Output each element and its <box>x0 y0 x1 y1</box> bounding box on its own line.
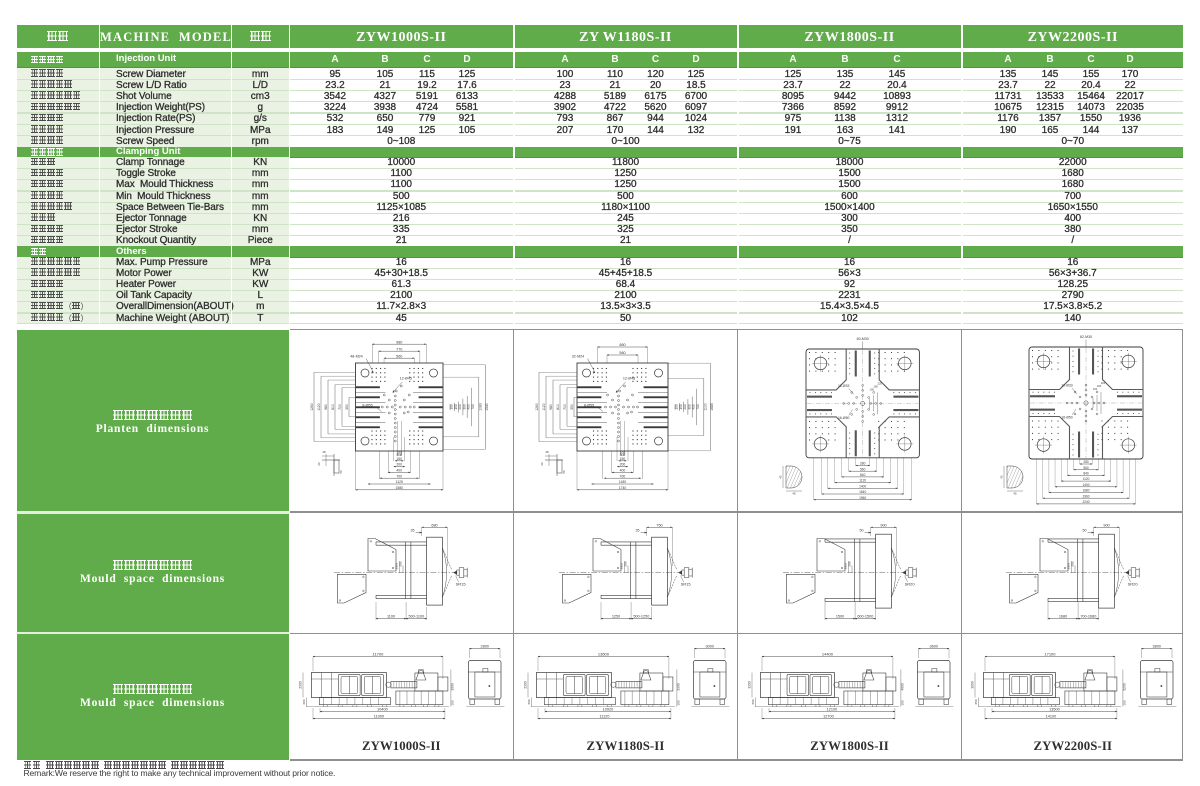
svg-text:1680: 1680 <box>1058 614 1066 618</box>
svg-text:560: 560 <box>396 354 402 358</box>
svg-text:980: 980 <box>396 340 402 344</box>
svg-text:Ø56: Ø56 <box>847 560 851 565</box>
svg-text:35: 35 <box>411 528 415 532</box>
svg-text:1260: 1260 <box>310 403 314 411</box>
svg-text:Ø56: Ø56 <box>623 560 627 565</box>
svg-text:810: 810 <box>331 404 335 410</box>
svg-text:82-M30: 82-M30 <box>1079 335 1091 339</box>
svg-text:12700: 12700 <box>823 714 834 718</box>
svg-text:1260: 1260 <box>534 403 538 411</box>
svg-text:100: 100 <box>676 700 680 705</box>
svg-text:50: 50 <box>1082 528 1086 532</box>
svg-text:980: 980 <box>548 404 552 410</box>
svg-text:12-Ø33: 12-Ø33 <box>1061 383 1072 387</box>
svg-text:700-1680: 700-1680 <box>1080 614 1096 618</box>
svg-text:1100: 1100 <box>703 403 707 410</box>
svg-text:60-M30: 60-M30 <box>856 337 868 341</box>
svg-text:11000: 11000 <box>374 714 384 718</box>
svg-text:500-1100: 500-1100 <box>408 614 424 618</box>
svg-text:50: 50 <box>859 528 863 532</box>
svg-text:2240: 2240 <box>1082 500 1089 504</box>
svg-text:45: 45 <box>778 475 782 479</box>
svg-text:1960: 1960 <box>859 495 866 499</box>
svg-text:500-1250: 500-1250 <box>633 614 649 618</box>
svg-text:45: 45 <box>792 491 796 495</box>
svg-text:17100: 17100 <box>1044 651 1056 656</box>
svg-text:1400: 1400 <box>1082 482 1089 486</box>
svg-text:Ø200: Ø200 <box>1066 562 1070 569</box>
svg-text:900: 900 <box>1103 523 1109 527</box>
svg-text:32-M24: 32-M24 <box>571 354 584 358</box>
svg-text:280: 280 <box>860 461 866 465</box>
svg-text:980: 980 <box>324 404 328 410</box>
svg-text:700: 700 <box>471 404 475 410</box>
svg-text:150: 150 <box>396 456 402 460</box>
svg-text:13500: 13500 <box>1049 707 1060 711</box>
svg-text:1540: 1540 <box>485 403 489 411</box>
svg-text:860: 860 <box>619 343 625 347</box>
svg-text:1640: 1640 <box>859 490 866 494</box>
svg-text:4000: 4000 <box>900 683 904 691</box>
svg-text:400: 400 <box>619 468 625 472</box>
svg-text:16-Ø50: 16-Ø50 <box>1061 415 1072 419</box>
svg-text:810: 810 <box>555 404 559 410</box>
svg-text:Ø56: Ø56 <box>399 560 403 565</box>
svg-text:1180: 1180 <box>618 480 625 484</box>
svg-text:1120: 1120 <box>859 478 866 482</box>
svg-text:28: 28 <box>545 450 549 454</box>
svg-text:1083: 1083 <box>479 403 483 411</box>
svg-text:48-M24: 48-M24 <box>350 354 363 358</box>
svg-text:900: 900 <box>880 523 886 527</box>
svg-text:12-Ø33: 12-Ø33 <box>838 383 849 387</box>
svg-text:45: 45 <box>999 475 1003 479</box>
svg-text:50: 50 <box>339 470 343 474</box>
svg-text:650: 650 <box>974 699 978 704</box>
svg-text:600-1500: 600-1500 <box>857 614 873 618</box>
svg-text:3000: 3000 <box>451 683 455 691</box>
svg-text:Ø200: Ø200 <box>395 562 399 569</box>
svg-text:3000: 3000 <box>705 644 713 648</box>
svg-text:350: 350 <box>345 404 349 410</box>
svg-text:SR15: SR15 <box>680 581 691 586</box>
svg-text:200: 200 <box>619 462 625 466</box>
svg-text:700: 700 <box>619 474 625 478</box>
svg-text:1250: 1250 <box>611 614 619 618</box>
svg-text:1400: 1400 <box>859 484 866 488</box>
svg-text:1960: 1960 <box>1082 494 1089 498</box>
svg-text:3300: 3300 <box>747 681 751 689</box>
svg-text:Ø56: Ø56 <box>1070 560 1074 565</box>
svg-text:200: 200 <box>396 462 402 466</box>
svg-text:1120: 1120 <box>541 403 545 410</box>
svg-text:400: 400 <box>396 468 402 472</box>
svg-text:13600: 13600 <box>597 651 609 656</box>
svg-text:560: 560 <box>619 351 625 355</box>
svg-text:220: 220 <box>877 381 882 385</box>
svg-text:840: 840 <box>860 473 866 477</box>
svg-text:50: 50 <box>562 470 566 474</box>
svg-text:35: 35 <box>635 528 639 532</box>
svg-text:28: 28 <box>322 450 326 454</box>
svg-text:8-Ø55: 8-Ø55 <box>362 403 372 407</box>
svg-text:1685: 1685 <box>710 403 714 411</box>
svg-text:1580: 1580 <box>395 485 403 489</box>
svg-text:560: 560 <box>860 467 866 471</box>
svg-text:2800: 2800 <box>480 644 488 648</box>
svg-text:600: 600 <box>527 699 531 704</box>
svg-text:700: 700 <box>696 404 700 410</box>
svg-text:20: 20 <box>540 462 544 466</box>
svg-text:2300: 2300 <box>523 681 527 689</box>
svg-text:350: 350 <box>569 404 573 410</box>
svg-text:1740: 1740 <box>618 485 626 489</box>
svg-text:3300: 3300 <box>676 683 680 691</box>
svg-text:700: 700 <box>562 404 566 410</box>
svg-text:1120: 1120 <box>1082 477 1089 481</box>
svg-text:560: 560 <box>1083 465 1089 469</box>
svg-text:10400: 10400 <box>377 707 388 711</box>
svg-text:SR20: SR20 <box>904 581 915 586</box>
svg-text:12-Ø45: 12-Ø45 <box>400 376 412 380</box>
svg-text:11120: 11120 <box>599 714 609 718</box>
svg-text:600: 600 <box>302 699 306 704</box>
svg-text:1100: 1100 <box>387 614 395 618</box>
svg-text:3000: 3000 <box>970 681 974 689</box>
svg-text:14400: 14400 <box>821 651 833 656</box>
svg-text:3800: 3800 <box>1152 644 1160 648</box>
svg-text:SR20: SR20 <box>1127 581 1138 586</box>
svg-text:12100: 12100 <box>826 707 837 711</box>
svg-text:1125: 1125 <box>396 480 403 484</box>
svg-text:840: 840 <box>1083 471 1089 475</box>
svg-text:280: 280 <box>1083 460 1089 464</box>
svg-text:14100: 14100 <box>1045 714 1056 718</box>
svg-text:20: 20 <box>317 462 321 466</box>
svg-text:680: 680 <box>431 523 437 527</box>
svg-text:770: 770 <box>396 347 402 351</box>
svg-text:700: 700 <box>338 404 342 410</box>
svg-text:1680: 1680 <box>1082 488 1089 492</box>
svg-text:100: 100 <box>900 700 904 705</box>
svg-text:600: 600 <box>751 699 755 704</box>
svg-text:16-Ø50: 16-Ø50 <box>838 415 849 419</box>
svg-text:3600: 3600 <box>929 644 937 648</box>
svg-text:Ø200: Ø200 <box>843 562 847 569</box>
svg-text:220: 220 <box>1100 381 1105 385</box>
svg-text:SR15: SR15 <box>456 581 467 586</box>
svg-text:150: 150 <box>619 456 625 460</box>
svg-text:12-Ø48: 12-Ø48 <box>622 376 634 380</box>
svg-text:5200: 5200 <box>1122 683 1126 691</box>
svg-text:2300: 2300 <box>299 681 303 689</box>
svg-text:700: 700 <box>396 474 402 478</box>
svg-text:750: 750 <box>656 523 662 527</box>
svg-text:100: 100 <box>1122 700 1126 705</box>
svg-text:100: 100 <box>451 700 455 705</box>
svg-text:45: 45 <box>1013 491 1017 495</box>
svg-text:8-Ø55: 8-Ø55 <box>583 403 593 407</box>
svg-text:Ø200: Ø200 <box>619 562 623 569</box>
svg-text:1500: 1500 <box>835 614 843 618</box>
svg-text:10920: 10920 <box>602 707 613 711</box>
svg-text:1120: 1120 <box>317 403 321 410</box>
svg-text:11700: 11700 <box>373 651 385 656</box>
